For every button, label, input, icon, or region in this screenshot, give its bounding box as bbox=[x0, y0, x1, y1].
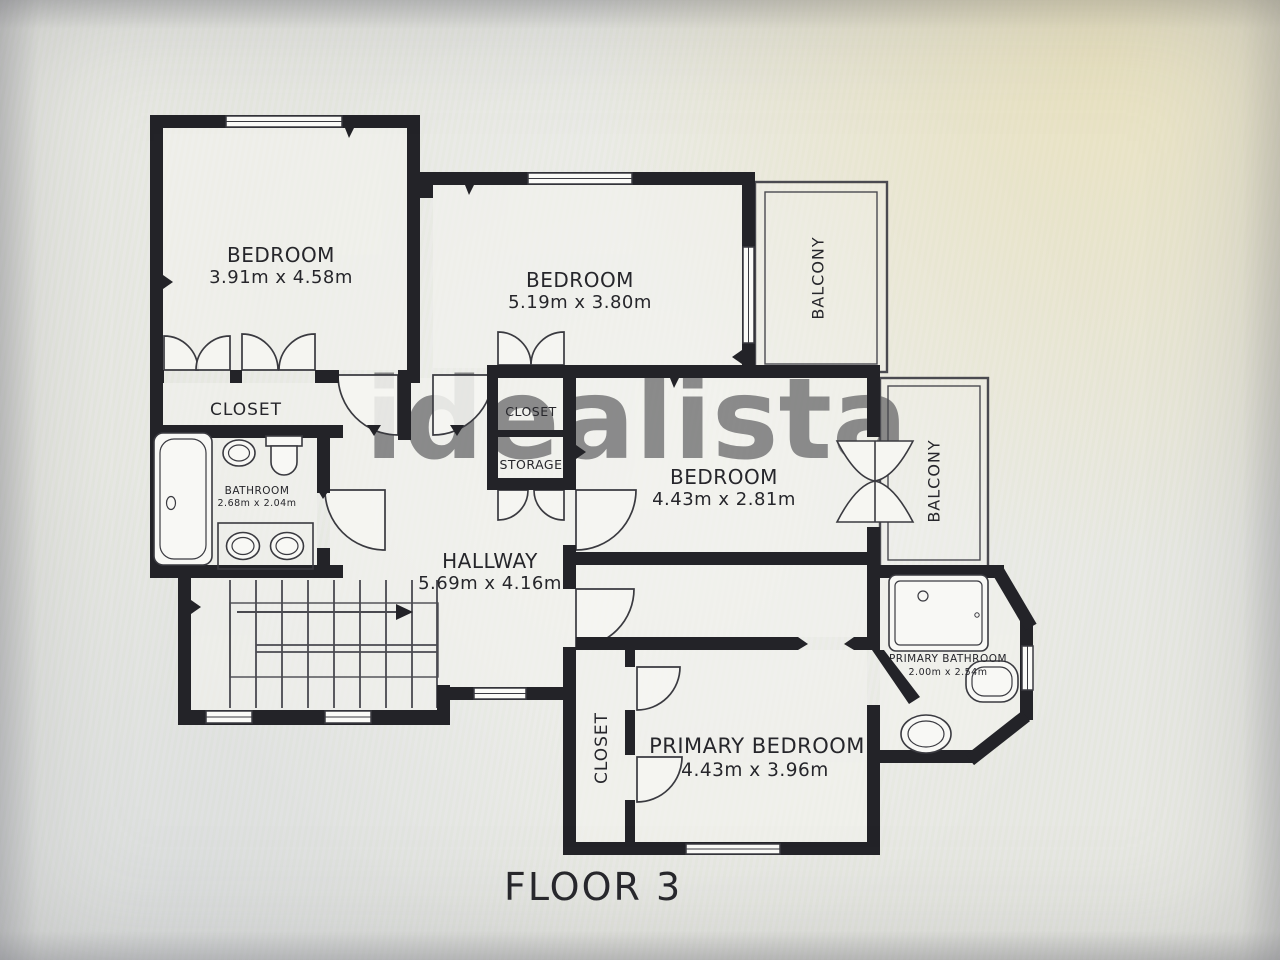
primary-bedroom-label: PRIMARY BEDROOM bbox=[649, 734, 865, 758]
storage-label: STORAGE bbox=[499, 457, 562, 472]
shower-tray bbox=[889, 575, 988, 651]
primary-bathroom-dims: 2.00m x 2.54m bbox=[909, 667, 988, 678]
bedroom1-label: BEDROOM bbox=[227, 243, 335, 267]
bathroom-label: BATHROOM bbox=[225, 485, 290, 497]
bedroom3-label: BEDROOM bbox=[670, 465, 778, 489]
closet1-label: CLOSET bbox=[210, 400, 282, 420]
floorplan-photo: idealista bbox=[0, 0, 1280, 960]
closet-primary-label: CLOSET bbox=[592, 712, 612, 784]
bedroom2-label: BEDROOM bbox=[526, 268, 634, 292]
balcony-side-label: BALCONY bbox=[925, 439, 944, 522]
bedroom3-dims: 4.43m x 2.81m bbox=[652, 489, 796, 510]
floorplan-drawing: idealista bbox=[0, 0, 1280, 960]
bathroom-dims: 2.68m x 2.04m bbox=[218, 498, 297, 509]
hallway-label: HALLWAY bbox=[442, 549, 538, 573]
floor-label: FLOOR 3 bbox=[504, 865, 682, 909]
bidet-tank bbox=[266, 436, 302, 446]
bathtub bbox=[154, 433, 212, 565]
primary-bedroom-dims: 4.43m x 3.96m bbox=[681, 760, 829, 781]
bedroom1-dims: 3.91m x 4.58m bbox=[209, 267, 353, 288]
balcony-top-label: BALCONY bbox=[809, 236, 828, 319]
bidet bbox=[271, 446, 297, 475]
toilet bbox=[223, 440, 255, 466]
primary-bathroom-label: PRIMARY BATHROOM bbox=[889, 653, 1007, 665]
hallway-dims: 5.69m x 4.16m bbox=[418, 573, 562, 594]
bedroom2-dims: 5.19m x 3.80m bbox=[508, 292, 652, 313]
closet2-label: CLOSET bbox=[505, 404, 557, 419]
